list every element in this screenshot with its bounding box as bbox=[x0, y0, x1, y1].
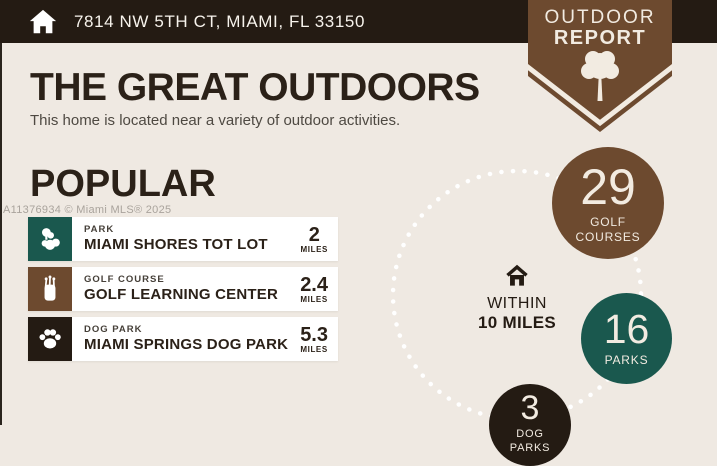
stat-value: 3 bbox=[521, 391, 540, 425]
stat-label: DOG PARKS bbox=[497, 428, 563, 456]
home-outline-icon bbox=[504, 262, 530, 287]
page-title: THE GREAT OUTDOORS bbox=[30, 66, 480, 110]
list-item-park: PARK MIAMI SHORES TOT LOT 2 MILES bbox=[28, 217, 338, 261]
golf-bag-icon bbox=[28, 267, 72, 311]
stat-golf-courses: 29 GOLF COURSES bbox=[552, 147, 664, 259]
home-icon bbox=[28, 7, 58, 37]
list-item-dog-park: DOG PARK MIAMI SPRINGS DOG PARK 5.3 MILE… bbox=[28, 317, 338, 361]
item-name: MIAMI SPRINGS DOG PARK bbox=[84, 336, 288, 353]
stat-dog-parks: 3 DOG PARKS bbox=[489, 384, 571, 466]
radius-line1: WITHIN bbox=[457, 295, 577, 313]
item-name: MIAMI SHORES TOT LOT bbox=[84, 236, 268, 253]
stat-label: GOLF COURSES bbox=[575, 215, 641, 245]
list-item-golf: GOLF COURSE GOLF LEARNING CENTER 2.4 MIL… bbox=[28, 267, 338, 311]
park-trees-icon bbox=[28, 217, 72, 261]
item-category: DOG PARK bbox=[84, 325, 288, 336]
item-distance: 2.4 bbox=[300, 275, 328, 295]
radius-center: WITHIN 10 MILES bbox=[457, 262, 577, 333]
stat-value: 29 bbox=[580, 162, 636, 212]
mls-watermark: A11376934 © Miami MLS® 2025 bbox=[3, 204, 171, 216]
stat-label: PARKS bbox=[605, 353, 649, 368]
item-unit: MILES bbox=[301, 246, 328, 254]
item-category: GOLF COURSE bbox=[84, 275, 278, 286]
badge-line1: OUTDOOR bbox=[528, 7, 672, 29]
paw-icon bbox=[28, 317, 72, 361]
item-category: PARK bbox=[84, 225, 268, 236]
radius-line2: 10 MILES bbox=[457, 313, 577, 333]
outdoor-report-badge: OUTDOOR REPORT bbox=[528, 0, 672, 132]
badge-line2: REPORT bbox=[528, 27, 672, 50]
address-text: 7814 NW 5TH CT, MIAMI, FL 33150 bbox=[74, 12, 365, 32]
item-distance: 5.3 bbox=[300, 325, 328, 345]
popular-list: PARK MIAMI SHORES TOT LOT 2 MILES GOLF C… bbox=[28, 217, 338, 361]
stat-value: 16 bbox=[604, 309, 650, 350]
item-distance: 2 bbox=[301, 225, 328, 245]
item-unit: MILES bbox=[300, 296, 328, 304]
popular-heading: POPULAR bbox=[30, 163, 216, 206]
page-subtitle: This home is located near a variety of o… bbox=[30, 112, 400, 129]
item-name: GOLF LEARNING CENTER bbox=[84, 286, 278, 303]
item-unit: MILES bbox=[300, 346, 328, 354]
stat-parks: 16 PARKS bbox=[581, 293, 672, 384]
